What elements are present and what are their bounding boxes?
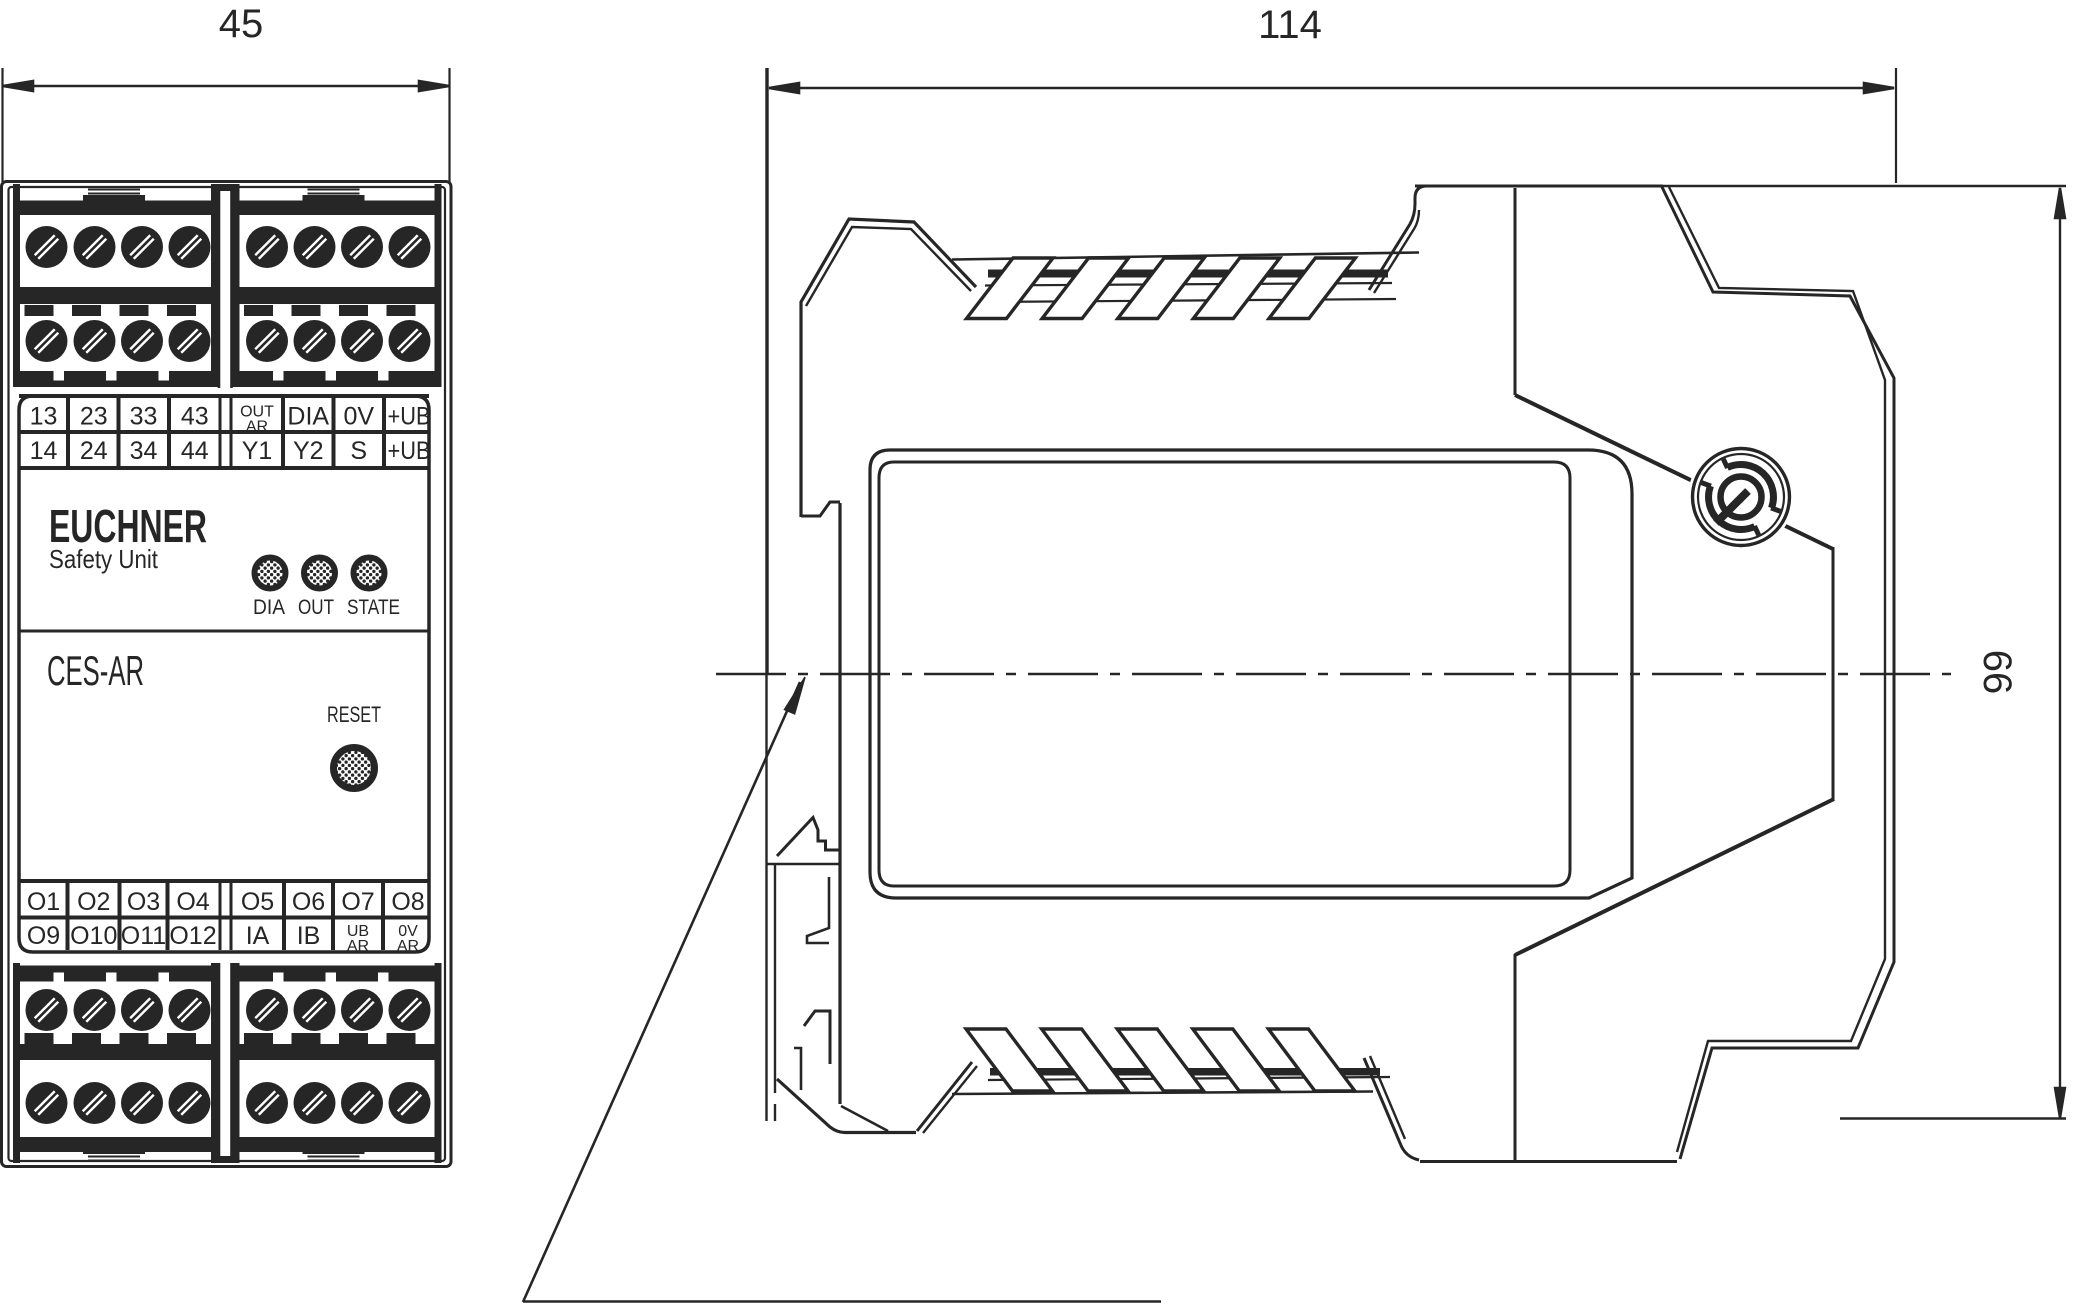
svg-text:Safety Unit: Safety Unit	[49, 544, 159, 574]
svg-text:CES-AR: CES-AR	[47, 647, 144, 694]
svg-text:Y1: Y1	[242, 437, 273, 465]
svg-text:IB: IB	[297, 922, 321, 950]
svg-text:44: 44	[181, 437, 209, 465]
svg-text:IA: IA	[246, 922, 270, 950]
svg-text:O7: O7	[341, 888, 374, 916]
svg-text:0V: 0V	[343, 403, 374, 431]
svg-text:AR: AR	[347, 938, 369, 955]
svg-text:23: 23	[80, 403, 108, 431]
svg-text:OUT: OUT	[298, 596, 334, 619]
svg-text:AR: AR	[397, 938, 419, 955]
svg-text:O3: O3	[127, 888, 160, 916]
svg-text:O11: O11	[121, 922, 166, 950]
svg-text:O12: O12	[169, 922, 216, 950]
svg-text:S: S	[350, 437, 367, 465]
svg-text:O5: O5	[241, 888, 274, 916]
svg-text:114: 114	[1258, 3, 1322, 47]
svg-text:66: 66	[1975, 650, 2019, 695]
svg-text:O9: O9	[27, 922, 60, 950]
svg-text:24: 24	[80, 437, 108, 465]
svg-text:13: 13	[30, 403, 58, 431]
svg-text:O1: O1	[27, 888, 60, 916]
svg-text:43: 43	[181, 403, 209, 431]
svg-text:DIA: DIA	[253, 596, 285, 619]
svg-text:45: 45	[219, 2, 264, 46]
svg-text:34: 34	[130, 437, 158, 465]
svg-text:O2: O2	[77, 888, 110, 916]
svg-text:O10: O10	[70, 922, 117, 950]
svg-text:+UB: +UB	[388, 437, 431, 465]
svg-text:Y2: Y2	[293, 437, 324, 465]
svg-text:+UB: +UB	[388, 403, 431, 431]
svg-text:O4: O4	[176, 888, 209, 916]
svg-text:AR: AR	[246, 419, 268, 436]
svg-text:O6: O6	[292, 888, 325, 916]
svg-text:STATE: STATE	[347, 596, 400, 619]
svg-text:RESET: RESET	[327, 702, 381, 727]
svg-text:DIA: DIA	[287, 403, 329, 431]
svg-text:14: 14	[30, 437, 58, 465]
svg-text:O8: O8	[391, 888, 424, 916]
svg-text:33: 33	[130, 403, 158, 431]
